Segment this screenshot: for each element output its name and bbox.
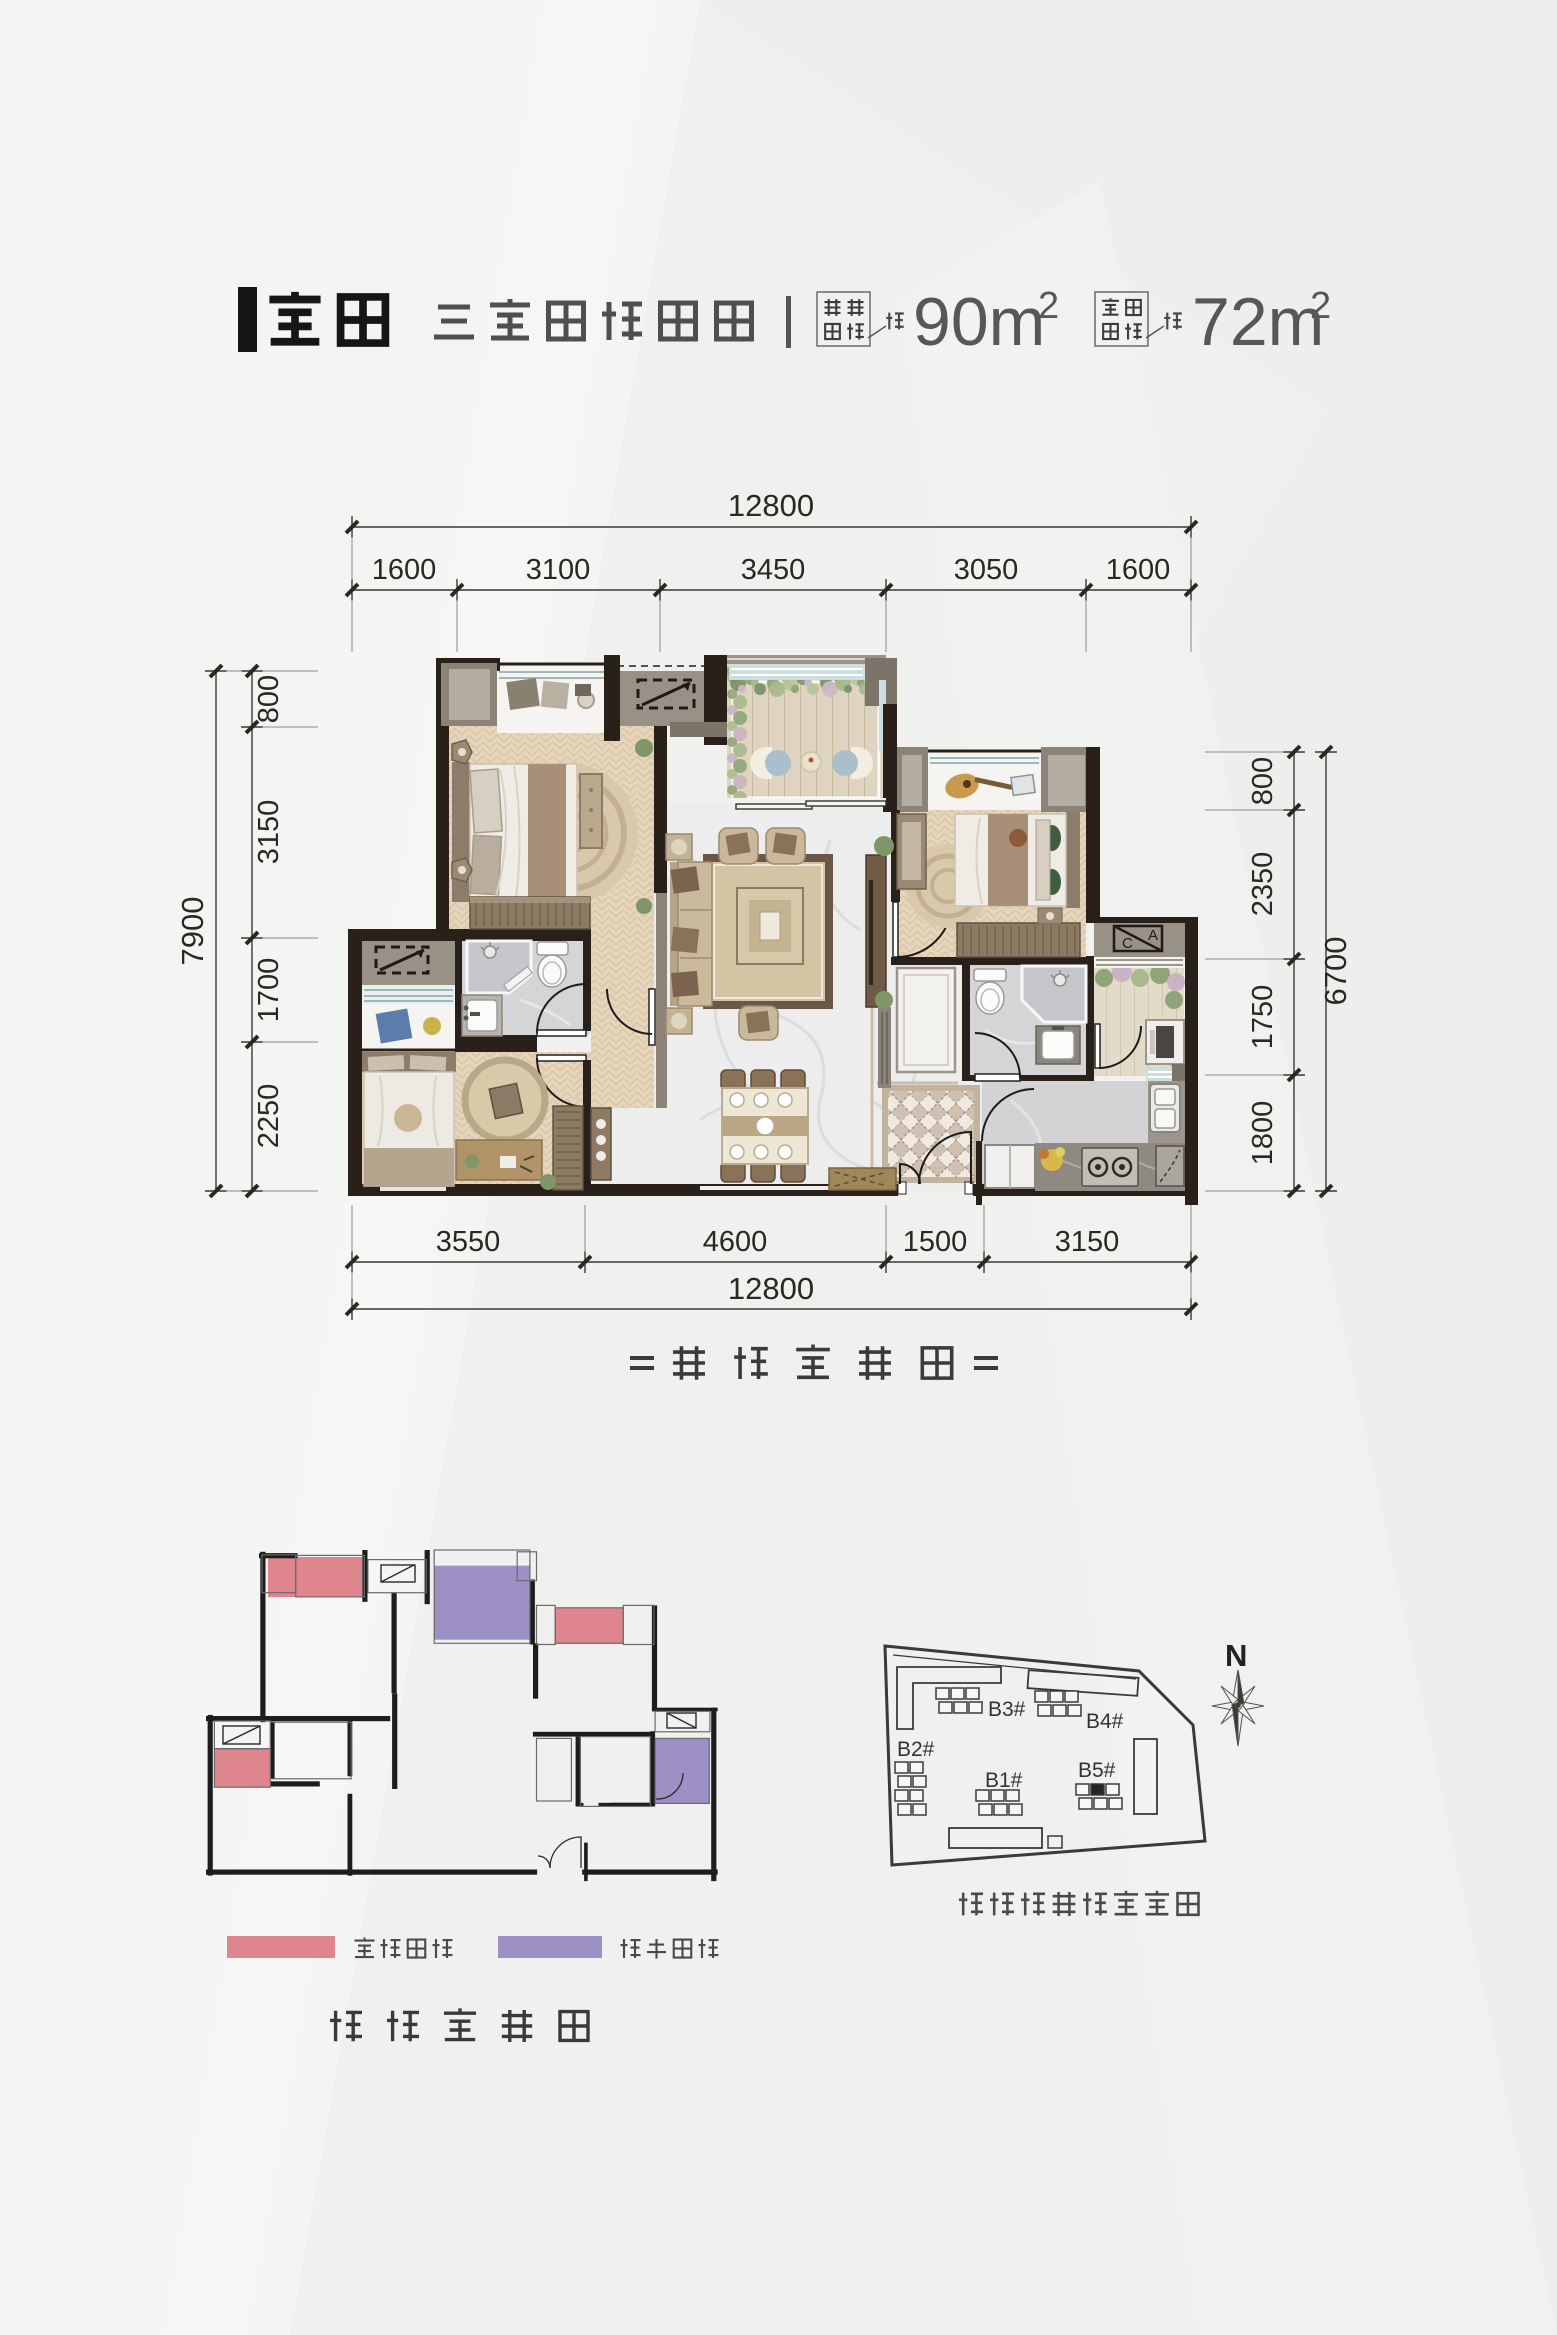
svg-text:72m: 72m <box>1192 284 1324 360</box>
svg-text:B5#: B5# <box>1078 1759 1116 1782</box>
svg-text:6700: 6700 <box>1318 937 1353 1006</box>
svg-text:2: 2 <box>1310 285 1331 327</box>
svg-text:B4#: B4# <box>1086 1710 1124 1733</box>
svg-text:12800: 12800 <box>728 488 814 523</box>
svg-text:2250: 2250 <box>253 1084 285 1149</box>
svg-text:1700: 1700 <box>253 958 285 1023</box>
svg-text:12800: 12800 <box>728 1271 814 1306</box>
svg-text:1500: 1500 <box>903 1226 968 1258</box>
svg-text:2350: 2350 <box>1247 852 1279 917</box>
svg-text:A: A <box>1148 927 1158 944</box>
svg-text:C: C <box>1122 935 1133 952</box>
svg-text:1600: 1600 <box>372 554 437 586</box>
svg-text:3450: 3450 <box>741 554 806 586</box>
svg-text:B2#: B2# <box>897 1738 935 1761</box>
svg-text:7900: 7900 <box>175 897 210 966</box>
svg-text:2: 2 <box>1038 285 1059 327</box>
svg-text:N: N <box>1225 1638 1247 1673</box>
svg-text:3550: 3550 <box>436 1226 501 1258</box>
svg-text:3050: 3050 <box>954 554 1019 586</box>
svg-text:3150: 3150 <box>1055 1226 1120 1258</box>
svg-text:4600: 4600 <box>703 1226 768 1258</box>
svg-text:3100: 3100 <box>526 554 591 586</box>
svg-text:800: 800 <box>253 675 285 723</box>
svg-text:800: 800 <box>1247 757 1279 805</box>
svg-text:B1#: B1# <box>985 1769 1023 1792</box>
svg-text:1600: 1600 <box>1106 554 1171 586</box>
svg-text:B3#: B3# <box>988 1698 1026 1721</box>
svg-text:1800: 1800 <box>1247 1101 1279 1166</box>
svg-text:1750: 1750 <box>1247 985 1279 1050</box>
svg-text:3150: 3150 <box>253 800 285 865</box>
svg-text:90m: 90m <box>913 284 1045 360</box>
